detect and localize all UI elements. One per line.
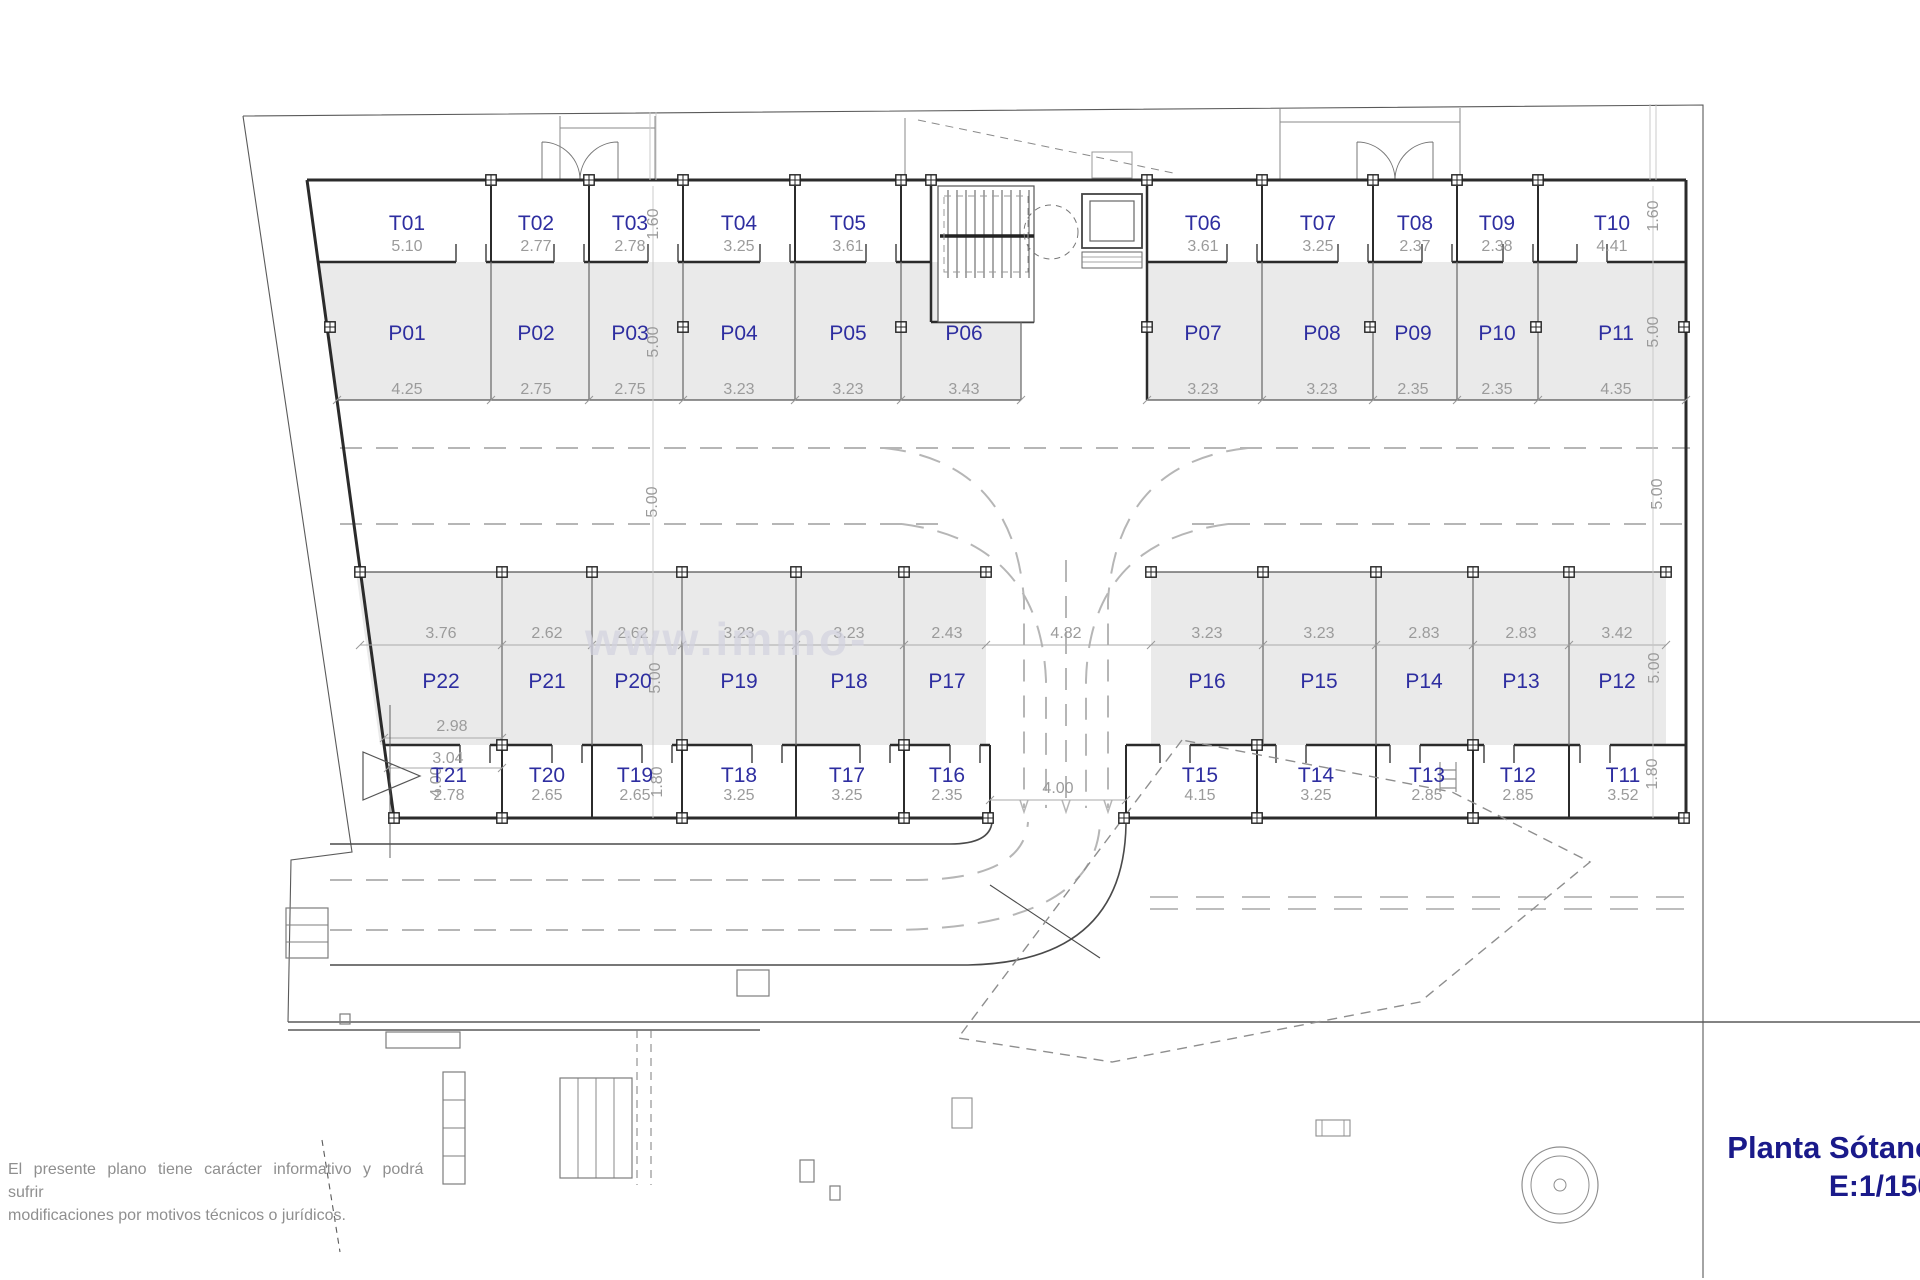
unit-dim-t09: 2.38 xyxy=(1481,238,1512,255)
unit-dim-p04: 3.23 xyxy=(723,381,754,398)
unit-label-t12: T12 xyxy=(1500,764,1536,787)
column-marker xyxy=(1452,175,1462,185)
unit-label-p05: P05 xyxy=(829,322,866,345)
unit-label-t11: T11 xyxy=(1606,764,1641,787)
unit-label-p01: P01 xyxy=(388,322,425,345)
unit-dim-t18: 3.25 xyxy=(723,787,754,804)
unit-dim-t15: 4.15 xyxy=(1184,787,1215,804)
unit-label-p13: P13 xyxy=(1502,670,1539,693)
column-marker xyxy=(1142,322,1152,332)
column-marker xyxy=(677,567,687,577)
unit-dim-p14: 2.83 xyxy=(1408,625,1439,642)
title-block: Planta Sótano E:1/150 xyxy=(1604,1130,1920,1204)
unit-dim-p22: 3.76 xyxy=(425,625,456,642)
unit-dim-t04: 3.25 xyxy=(723,238,754,255)
unit-dim-p10: 2.35 xyxy=(1481,381,1512,398)
unit-label-t02: T02 xyxy=(518,212,554,235)
unit-dim-t19: 2.65 xyxy=(619,787,650,804)
unit-dim-t17: 3.25 xyxy=(831,787,862,804)
column-marker xyxy=(584,175,594,185)
unit-dim-p08: 3.23 xyxy=(1306,381,1337,398)
column-marker xyxy=(926,175,936,185)
unit-dim-p01: 4.25 xyxy=(391,381,422,398)
column-marker xyxy=(790,175,800,185)
upper-floor-outline xyxy=(560,108,1460,180)
column-marker xyxy=(677,740,687,750)
column-marker xyxy=(497,813,507,823)
column-marker xyxy=(1531,322,1541,332)
dim-lane-left: 5.00 xyxy=(644,486,661,517)
dim-stall-top-right: 5.00 xyxy=(1645,316,1662,347)
ramp-direction-marks xyxy=(1020,800,1112,812)
column-marker xyxy=(389,813,399,823)
column-marker xyxy=(1252,740,1262,750)
unit-label-p19: P19 xyxy=(720,670,757,693)
plan-scale: E:1/150 xyxy=(1604,1170,1920,1204)
column-marker xyxy=(1468,740,1478,750)
column-marker xyxy=(1257,175,1267,185)
unit-label-t17: T17 xyxy=(829,764,865,787)
unit-dim-p17: 2.43 xyxy=(931,625,962,642)
unit-dim-p11: 4.35 xyxy=(1600,381,1631,398)
unit-dim-t07: 3.25 xyxy=(1302,238,1333,255)
column-marker xyxy=(791,567,801,577)
unit-label-t13: T13 xyxy=(1409,764,1445,787)
unit-dim-p16: 3.23 xyxy=(1191,625,1222,642)
unit-dim-t01: 5.10 xyxy=(391,238,422,255)
dim-p22-front: 2.98 xyxy=(436,718,467,735)
unit-label-p18: P18 xyxy=(830,670,867,693)
column-marker xyxy=(497,567,507,577)
column-marker xyxy=(1679,322,1689,332)
column-marker xyxy=(899,740,909,750)
unit-dim-t21: 2.78 xyxy=(433,787,464,804)
column-marker xyxy=(355,567,365,577)
disclaimer: El presente plano tiene carácter informa… xyxy=(8,1158,428,1228)
dim-trastero-top-right: 1.60 xyxy=(1645,200,1662,231)
unit-label-p12: P12 xyxy=(1598,670,1635,693)
column-marker xyxy=(1564,567,1574,577)
unit-label-t16: T16 xyxy=(929,764,965,787)
door-swing-arcs xyxy=(542,142,1433,180)
unit-dim-p07: 3.23 xyxy=(1187,381,1218,398)
unit-label-p07: P07 xyxy=(1184,322,1221,345)
column-marker xyxy=(1679,813,1689,823)
column-marker xyxy=(678,175,688,185)
dim-center-span: 4.82 xyxy=(1050,625,1081,642)
unit-label-t05: T05 xyxy=(830,212,866,235)
column-marker xyxy=(486,175,496,185)
unit-dim-t12: 2.85 xyxy=(1502,787,1533,804)
column-marker xyxy=(1142,175,1152,185)
unit-dim-p02: 2.75 xyxy=(520,381,551,398)
unit-dim-t11: 3.52 xyxy=(1607,787,1638,804)
unit-dim-t16: 2.35 xyxy=(931,787,962,804)
unit-label-t10: T10 xyxy=(1594,212,1630,235)
unit-label-t08: T08 xyxy=(1397,212,1433,235)
unit-dim-t13: 2.85 xyxy=(1411,787,1442,804)
unit-label-p21: P21 xyxy=(528,670,565,693)
column-marker xyxy=(1468,567,1478,577)
floor-plan-page: 1.60 1.60 5.00 5.00 5.00 5.00 5.00 5.00 … xyxy=(0,0,1920,1280)
column-marker xyxy=(896,322,906,332)
column-marker xyxy=(1468,813,1478,823)
stair-core xyxy=(938,186,1078,322)
unit-label-t15: T15 xyxy=(1182,764,1218,787)
unit-label-p22: P22 xyxy=(422,670,459,693)
column-marker xyxy=(587,567,597,577)
column-marker xyxy=(899,813,909,823)
dim-ramp-width: 4.00 xyxy=(1042,780,1073,797)
pool-area xyxy=(952,740,1598,1223)
east-road-dashes xyxy=(1150,897,1700,909)
disclaimer-line2: modificaciones por motivos técnicos o ju… xyxy=(8,1204,428,1227)
unit-dim-t06: 3.61 xyxy=(1187,238,1218,255)
column-marker xyxy=(678,322,688,332)
column-marker xyxy=(981,567,991,577)
watermark: www.immo- xyxy=(585,612,868,666)
unit-label-t20: T20 xyxy=(529,764,565,787)
unit-dim-p15: 3.23 xyxy=(1303,625,1334,642)
road-solid-edges xyxy=(330,822,1126,965)
unit-label-t18: T18 xyxy=(721,764,757,787)
unit-dim-p06: 3.43 xyxy=(948,381,979,398)
unit-label-t21: T21 xyxy=(431,764,467,787)
column-marker xyxy=(1252,813,1262,823)
floor-plan-canvas: 1.60 1.60 5.00 5.00 5.00 5.00 5.00 5.00 … xyxy=(0,0,1920,1280)
unit-dim-t03: 2.78 xyxy=(614,238,645,255)
unit-dim-t02: 2.77 xyxy=(520,238,551,255)
column-marker xyxy=(1258,567,1268,577)
unit-dim-t14: 3.25 xyxy=(1300,787,1331,804)
unit-label-p16: P16 xyxy=(1188,670,1225,693)
unit-label-t04: T04 xyxy=(721,212,758,235)
unit-label-t01: T01 xyxy=(389,212,425,235)
unit-dim-p12: 3.42 xyxy=(1601,625,1632,642)
unit-label-p04: P04 xyxy=(720,322,758,345)
unit-label-p10: P10 xyxy=(1478,322,1515,345)
unit-dim-p09: 2.35 xyxy=(1397,381,1428,398)
unit-label-t07: T07 xyxy=(1300,212,1336,235)
disclaimer-line1: El presente plano tiene carácter informa… xyxy=(8,1158,428,1204)
dim-trastero-bottom-right: 1.80 xyxy=(1644,758,1661,789)
dim-lane-right: 5.00 xyxy=(1649,478,1666,509)
column-marker xyxy=(1371,567,1381,577)
column-marker xyxy=(1365,322,1375,332)
unit-label-t19: T19 xyxy=(617,764,653,787)
unit-dim-t10: 4.41 xyxy=(1596,238,1627,255)
unit-label-p14: P14 xyxy=(1405,670,1443,693)
unit-dim-p05: 3.23 xyxy=(832,381,863,398)
unit-dim-t20: 2.65 xyxy=(531,787,562,804)
plan-title: Planta Sótano xyxy=(1604,1130,1920,1166)
unit-label-p03: P03 xyxy=(611,322,648,345)
column-marker xyxy=(1119,813,1129,823)
column-marker xyxy=(325,322,335,332)
column-marker xyxy=(896,175,906,185)
column-marker xyxy=(677,813,687,823)
elevator xyxy=(1082,152,1142,268)
unit-label-t14: T14 xyxy=(1298,764,1335,787)
column-marker xyxy=(1146,567,1156,577)
column-marker xyxy=(899,567,909,577)
dim-stall-bottom-right: 5.00 xyxy=(1646,652,1663,683)
column-marker xyxy=(1368,175,1378,185)
unit-label-p02: P02 xyxy=(517,322,554,345)
unit-label-t06: T06 xyxy=(1185,212,1221,235)
unit-label-p20: P20 xyxy=(614,670,651,693)
unit-dim-t08: 2.37 xyxy=(1399,238,1430,255)
unit-label-t09: T09 xyxy=(1479,212,1515,235)
unit-label-p17: P17 xyxy=(928,670,965,693)
site-features xyxy=(286,908,840,1200)
unit-label-p08: P08 xyxy=(1303,322,1340,345)
column-marker xyxy=(1533,175,1543,185)
unit-label-p06: P06 xyxy=(945,322,982,345)
unit-label-t03: T03 xyxy=(612,212,648,235)
unit-label-p09: P09 xyxy=(1394,322,1431,345)
column-marker xyxy=(1661,567,1671,577)
unit-dim-p21: 2.62 xyxy=(531,625,562,642)
column-marker xyxy=(983,813,993,823)
column-marker xyxy=(497,740,507,750)
unit-label-p15: P15 xyxy=(1300,670,1337,693)
unit-dim-p03: 2.75 xyxy=(614,381,645,398)
unit-dim-p13: 2.83 xyxy=(1505,625,1536,642)
unit-label-p11: P11 xyxy=(1598,322,1634,345)
unit-dim-t05: 3.61 xyxy=(832,238,863,255)
